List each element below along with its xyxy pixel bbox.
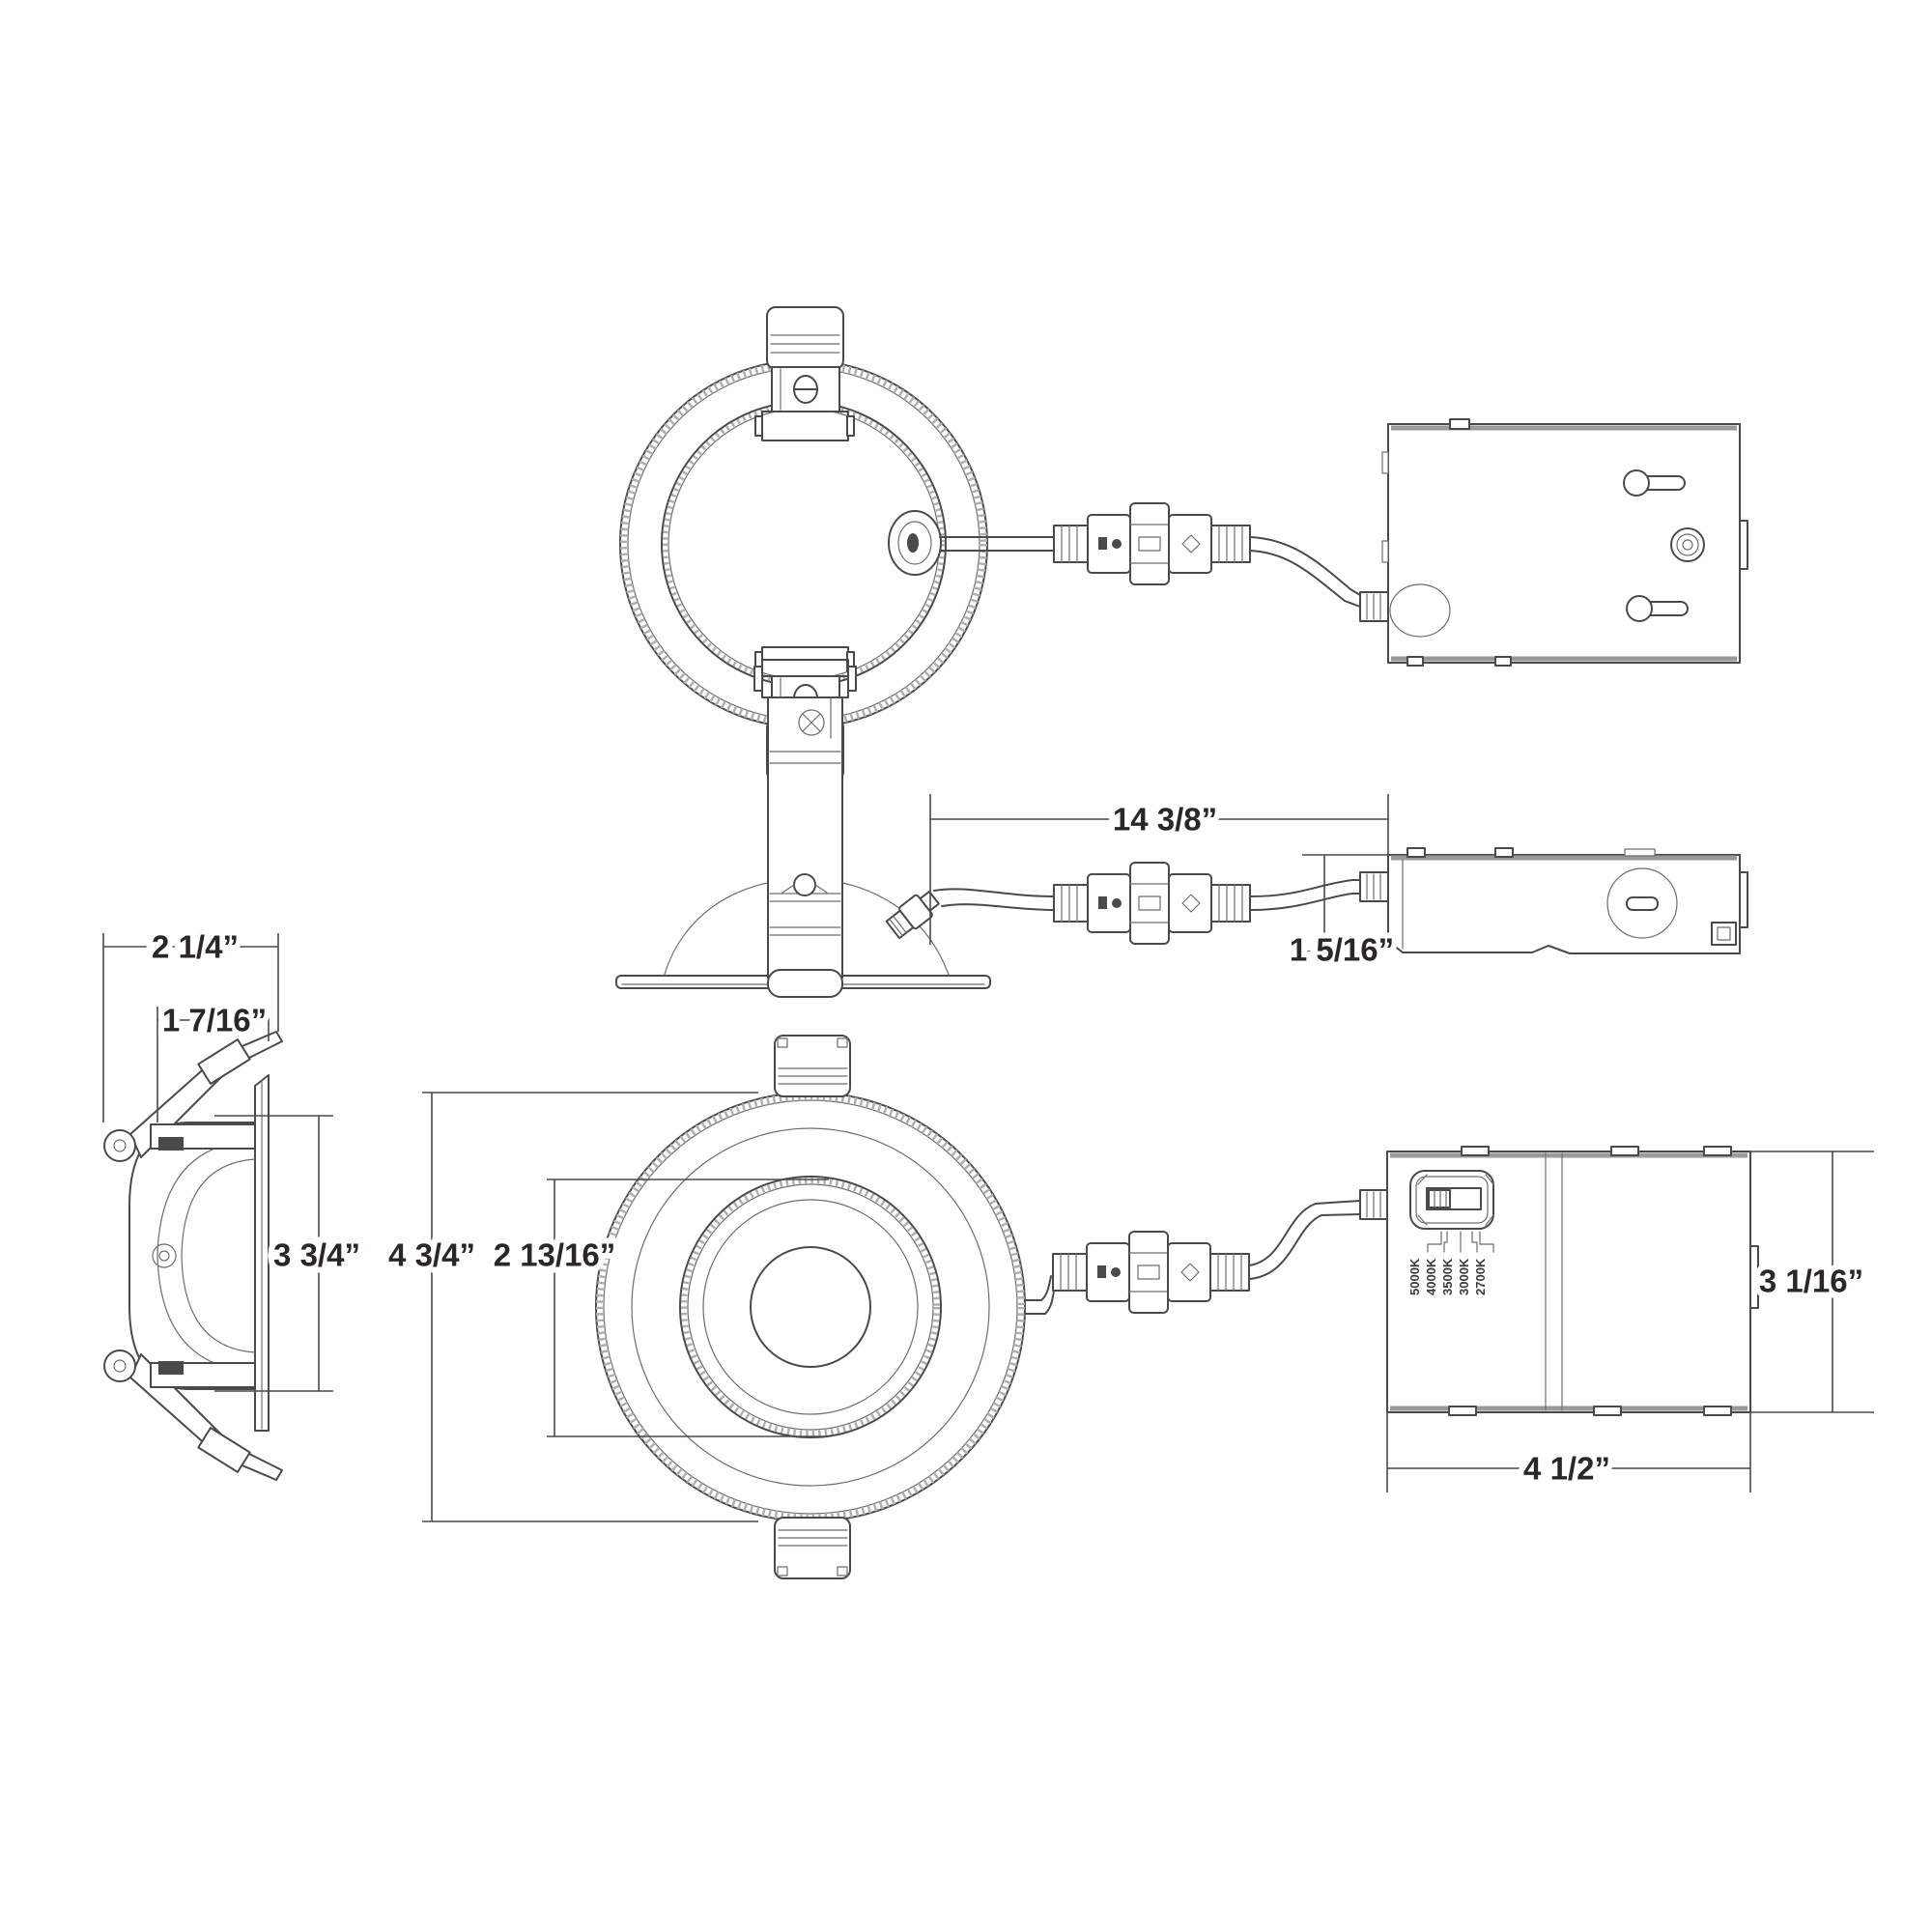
dimension-junction-box-front-height: 3 1/16” [1750,1151,1874,1412]
junction-box-top-view [1382,419,1747,666]
led-lens-icon [751,1247,870,1367]
dimension-label-profile-housing-height: 3 3/4” [273,1237,360,1273]
dimension-label-cable-length: 14 3/8” [1113,802,1217,838]
dimension-junction-box-front-width: 4 1/2” [1387,1412,1750,1492]
fixture-front-view [596,1036,1025,1578]
connector-cable-top [940,503,1388,621]
fixture-profile-view [104,1032,282,1480]
dimension-label-junction-box-front-width: 4 1/2” [1523,1451,1610,1487]
cct-label-2700k: 2700K [1473,1258,1488,1295]
technical-drawing-canvas: 5000K 4000K 3500K 3000K 2700K 2 1/4” 1 7… [0,0,1932,1932]
dimension-label-profile-recess-width: 1 7/16” [162,1003,267,1038]
dimension-label-front-trim-diameter: 4 3/4” [388,1237,475,1273]
junction-box-front-view: 5000K 4000K 3500K 3000K 2700K [1387,1147,1758,1415]
cct-label-5000k: 5000K [1407,1258,1422,1295]
dimension-front-aperture-diameter: 2 13/16” [494,1179,829,1436]
drawing-sheet: 5000K 4000K 3500K 3000K 2700K 2 1/4” 1 7… [0,0,1932,1932]
cct-label-3500k: 3500K [1440,1258,1455,1295]
cable-connector-icon [885,887,943,940]
cct-label-4000k: 4000K [1424,1258,1438,1295]
dimension-label-front-aperture-diameter: 2 13/16” [494,1237,616,1273]
dimension-label-profile-overall-width: 2 1/4” [152,929,239,965]
cct-labels: 5000K 4000K 3500K 3000K 2700K [1407,1258,1488,1295]
junction-box-side-view [1388,848,1747,953]
cct-selector-switch [1410,1171,1493,1229]
dimension-label-junction-box-side-height: 1 5/16” [1290,932,1394,968]
dimension-label-junction-box-front-height: 3 1/16” [1759,1264,1863,1299]
cable-gland-icon [889,511,941,575]
fixture-side-view [616,660,990,997]
adjust-screw-icon [794,874,815,895]
connector-cable-bottom [1025,1190,1387,1314]
wire-loop-icon [1390,584,1450,637]
cct-label-3000k: 3000K [1457,1258,1471,1295]
